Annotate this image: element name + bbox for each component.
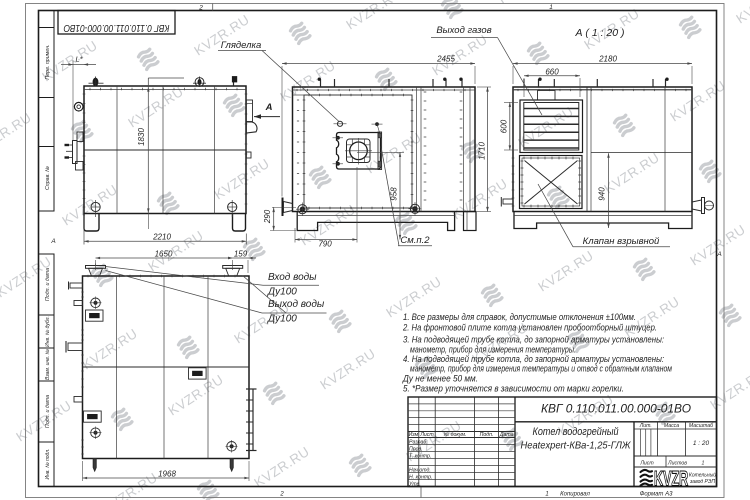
svg-text:Лист: Лист (639, 461, 654, 467)
svg-text:Инв. № подл.: Инв. № подл. (45, 448, 51, 479)
svg-text:Лит.: Лит. (639, 423, 652, 429)
svg-text:А ( 1 : 20 ): А ( 1 : 20 ) (574, 27, 624, 39)
svg-text:2. На фронтовой плите котла ус: 2. На фронтовой плите котла установлен п… (402, 323, 657, 333)
svg-text:790: 790 (318, 240, 332, 249)
svg-text:Подп.: Подп. (480, 432, 494, 438)
svg-text:958: 958 (390, 187, 399, 201)
svg-text:Н. контр.: Н. контр. (409, 474, 432, 480)
svg-text:Масса: Масса (664, 423, 679, 429)
svg-text:159: 159 (234, 250, 248, 259)
svg-text:Взам. инв. №: Взам. инв. № (45, 348, 51, 380)
svg-text:KVZR: KVZR (654, 466, 689, 490)
svg-text:1. Все размеры для справок, до: 1. Все размеры для справок, допустимые о… (403, 312, 636, 322)
svg-text:1650: 1650 (155, 250, 173, 259)
svg-text:Котельный: Котельный (689, 472, 716, 479)
svg-text:1: 1 (545, 492, 548, 498)
svg-text:2210: 2210 (152, 232, 171, 241)
svg-text:Пров.: Пров. (409, 446, 423, 452)
svg-text:КВГ 0.110.011.00.000-01ВО: КВГ 0.110.011.00.000-01ВО (541, 402, 691, 416)
svg-text:940: 940 (597, 187, 606, 201)
svg-text:Клапан взрывной: Клапан взрывной (583, 236, 660, 247)
svg-text:4. На подводящей трубе котла,: 4. На подводящей трубе котла, до запорно… (403, 354, 664, 364)
svg-text:КВГ 0.110.011.00.000-01ВО: КВГ 0.110.011.00.000-01ВО (63, 22, 169, 33)
svg-text:завод РЭП: завод РЭП (689, 479, 715, 485)
svg-text:Подп. и дата: Подп. и дата (45, 395, 51, 428)
svg-text:1: 1 (549, 4, 553, 11)
svg-text:3. На подводящей трубе котла,: 3. На подводящей трубе котла, до запорно… (403, 335, 664, 345)
svg-text:№ докум.: № докум. (444, 432, 467, 438)
svg-text:манометр, прибор для измерения: манометр, прибор для измерения температу… (410, 345, 576, 355)
svg-text:Утв.: Утв. (409, 481, 421, 487)
svg-text:Формат А3: Формат А3 (640, 492, 673, 498)
svg-text:А: А (50, 238, 55, 245)
svg-text:1830: 1830 (137, 128, 146, 146)
svg-text:Справ. №: Справ. № (45, 166, 51, 190)
svg-text:А: А (716, 251, 721, 258)
svg-text:Масштаб: Масштаб (689, 423, 714, 429)
svg-text:Дата: Дата (499, 432, 514, 438)
svg-text:2455: 2455 (436, 54, 455, 63)
svg-text:Котел водогрейный: Котел водогрейный (533, 426, 619, 438)
svg-text:L*: L* (75, 55, 83, 64)
svg-text:манометр, прибор для измерения: манометр, прибор для измерения температу… (410, 364, 672, 374)
svg-text:См.п.2: См.п.2 (400, 235, 430, 246)
svg-text:Ду не менее 50 мм.: Ду не менее 50 мм. (402, 374, 478, 384)
svg-text:1 : 20: 1 : 20 (693, 440, 710, 447)
svg-text:Разраб.: Разраб. (409, 439, 428, 445)
svg-text:Подп. и дата: Подп. и дата (45, 268, 51, 301)
svg-text:290: 290 (263, 209, 272, 224)
svg-text:2: 2 (279, 492, 284, 498)
svg-text:Т. контр.: Т. контр. (409, 453, 431, 459)
svg-text:Гляделка: Гляделка (221, 40, 262, 51)
svg-text:Ду100: Ду100 (267, 287, 297, 298)
svg-text:2180: 2180 (598, 54, 617, 63)
svg-text:Изм: Изм (409, 432, 419, 438)
svg-text:Heatexpert-КВа-1,25-ГЛЖ: Heatexpert-КВа-1,25-ГЛЖ (521, 440, 632, 452)
svg-text:1: 1 (702, 461, 705, 467)
svg-text:Копировал: Копировал (560, 492, 590, 498)
svg-text:Ду100: Ду100 (267, 314, 297, 325)
svg-text:5. *Размер уточняется в зависи: 5. *Размер уточняется в зависимости от м… (403, 384, 624, 394)
svg-text:Инв. № дубл.: Инв. № дубл. (45, 316, 51, 347)
svg-text:Вход воды: Вход воды (268, 272, 317, 283)
svg-text:Выход газов: Выход газов (436, 25, 491, 36)
svg-text:2: 2 (198, 5, 203, 12)
svg-text:1710: 1710 (478, 142, 487, 160)
svg-text:Нач.отд.: Нач.отд. (409, 467, 431, 473)
svg-text:660: 660 (545, 68, 559, 77)
svg-text:1968: 1968 (158, 470, 176, 479)
svg-text:600: 600 (499, 119, 508, 133)
svg-text:Перв. примен.: Перв. примен. (45, 44, 51, 79)
svg-text:А: А (265, 102, 273, 113)
svg-text:Лист: Лист (419, 432, 434, 438)
